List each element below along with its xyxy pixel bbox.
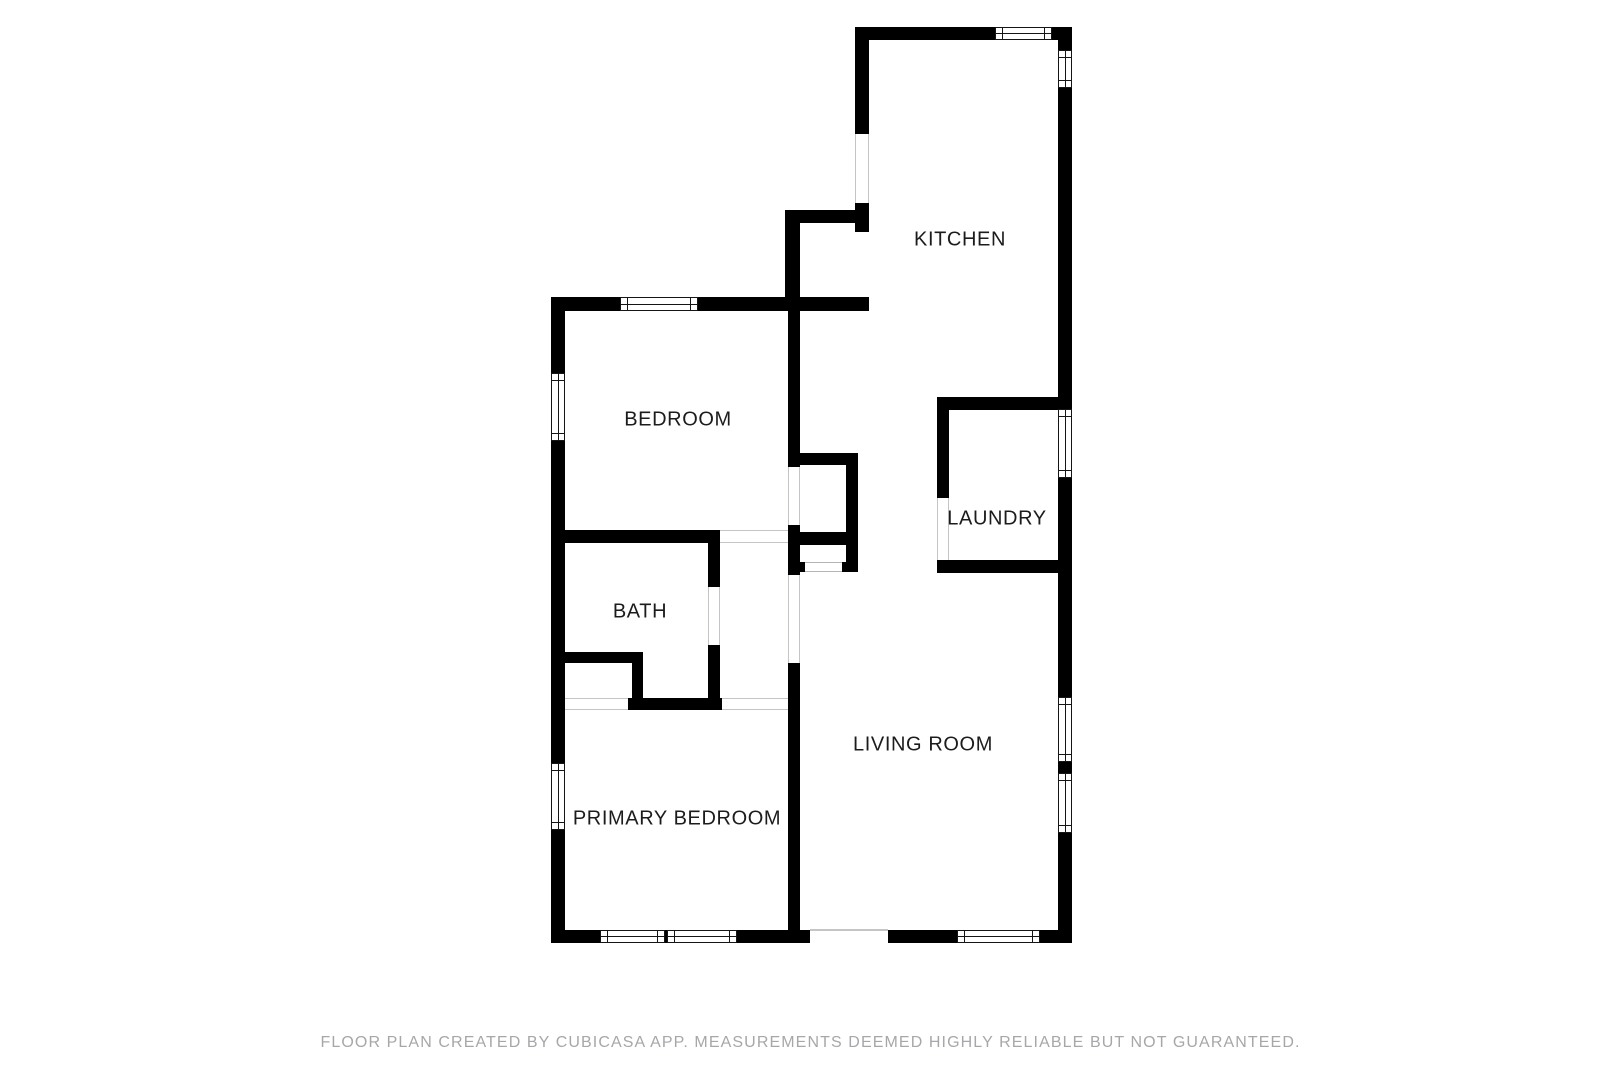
window-pane-line bbox=[1065, 410, 1066, 477]
window-pane-line bbox=[1065, 774, 1066, 832]
window bbox=[667, 930, 737, 943]
wall bbox=[785, 210, 800, 311]
room-label-bath: BATH bbox=[613, 601, 667, 624]
window-pane-line bbox=[621, 304, 697, 305]
window bbox=[600, 930, 665, 943]
window-pane-line bbox=[1065, 698, 1066, 761]
window-pane-line bbox=[958, 936, 1039, 937]
window bbox=[957, 930, 1040, 943]
window bbox=[1058, 773, 1072, 833]
room-label-primary-bedroom: PRIMARY BEDROOM bbox=[573, 808, 781, 831]
window bbox=[1058, 697, 1072, 762]
window-pane-line bbox=[558, 764, 559, 829]
window bbox=[551, 373, 565, 441]
window-pane-line bbox=[1059, 57, 1071, 58]
window-pane-line bbox=[1002, 28, 1003, 39]
window-pane-line bbox=[1059, 825, 1071, 826]
window-pane-line bbox=[1059, 470, 1071, 471]
window-pane-line bbox=[996, 33, 1051, 34]
room-label-laundry: LAUNDRY bbox=[947, 508, 1046, 531]
door-opening bbox=[565, 698, 628, 710]
window-pane-line bbox=[1059, 80, 1071, 81]
wall bbox=[937, 397, 949, 498]
window bbox=[620, 297, 698, 311]
window-pane-line bbox=[657, 931, 658, 942]
wall bbox=[708, 530, 720, 587]
window bbox=[995, 27, 1052, 40]
window-pane-line bbox=[1032, 931, 1033, 942]
window bbox=[1058, 50, 1072, 88]
door-opening bbox=[810, 929, 888, 943]
window-pane-line bbox=[627, 298, 628, 310]
window-pane-line bbox=[668, 936, 736, 937]
room-label-bedroom: BEDROOM bbox=[624, 409, 732, 432]
wall bbox=[788, 532, 847, 545]
door-jamb bbox=[842, 562, 847, 572]
window-pane-line bbox=[729, 931, 730, 942]
window-pane-line bbox=[1044, 28, 1045, 39]
door-opening bbox=[722, 698, 788, 710]
window-pane-line bbox=[552, 822, 564, 823]
wall bbox=[937, 397, 1058, 410]
window bbox=[1058, 409, 1072, 478]
floor-plan: KITCHEN BEDROOM LAUNDRY BATH LIVING ROOM… bbox=[0, 0, 1621, 1080]
window-pane-line bbox=[552, 770, 564, 771]
window-pane-line bbox=[552, 433, 564, 434]
window-pane-line bbox=[558, 374, 559, 440]
door-opening bbox=[720, 530, 788, 543]
window-pane-line bbox=[607, 931, 608, 942]
window-pane-line bbox=[601, 936, 664, 937]
door-jamb bbox=[800, 562, 805, 572]
window-pane-line bbox=[674, 931, 675, 942]
footer-disclaimer: FLOOR PLAN CREATED BY CUBICASA APP. MEAS… bbox=[0, 1034, 1621, 1052]
wall bbox=[628, 698, 722, 710]
window-pane-line bbox=[1059, 416, 1071, 417]
door-opening bbox=[788, 467, 800, 525]
floor-plan-page: KITCHEN BEDROOM LAUNDRY BATH LIVING ROOM… bbox=[0, 0, 1621, 1080]
window-pane-line bbox=[552, 380, 564, 381]
door-opening bbox=[788, 575, 800, 663]
window-pane-line bbox=[964, 931, 965, 942]
window-pane-line bbox=[1059, 754, 1071, 755]
wall bbox=[551, 297, 869, 311]
door-opening bbox=[800, 562, 847, 572]
wall bbox=[937, 560, 1072, 573]
door-opening bbox=[855, 134, 869, 203]
room-label-kitchen: KITCHEN bbox=[914, 229, 1006, 252]
window-pane-line bbox=[1059, 704, 1071, 705]
window-pane-line bbox=[690, 298, 691, 310]
wall bbox=[788, 663, 800, 943]
wall bbox=[788, 297, 800, 467]
room-label-living-room: LIVING ROOM bbox=[853, 734, 993, 757]
wall bbox=[551, 530, 720, 543]
door-opening bbox=[708, 587, 720, 645]
wall bbox=[846, 453, 858, 572]
window bbox=[551, 763, 565, 830]
window-pane-line bbox=[1059, 780, 1071, 781]
